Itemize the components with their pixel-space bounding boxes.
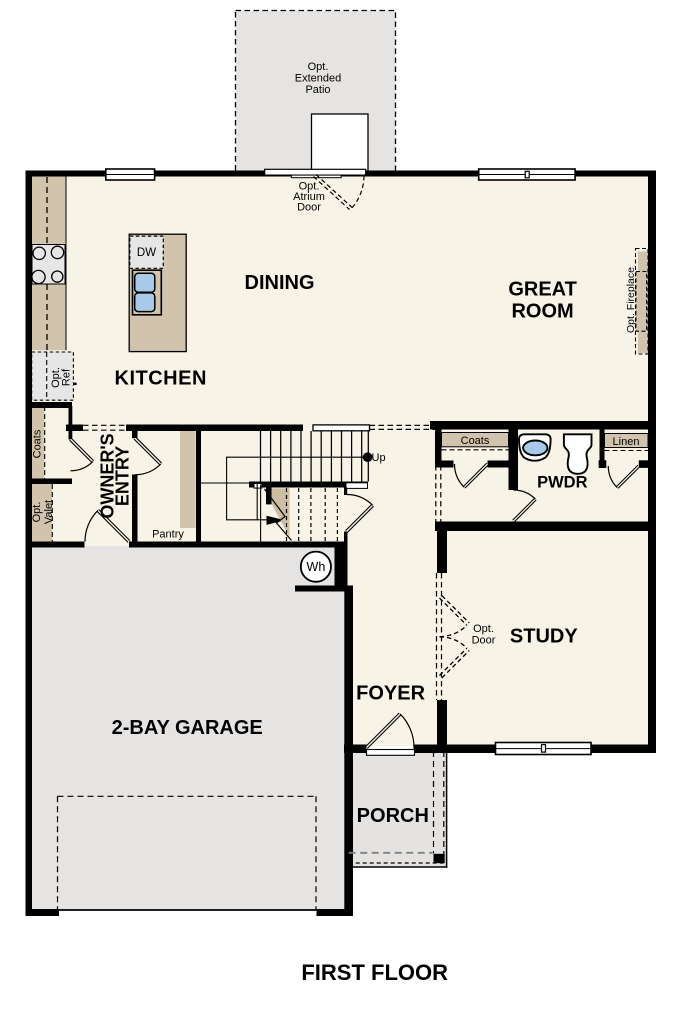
- svg-text:FIRST FLOOR: FIRST FLOOR: [301, 960, 448, 985]
- svg-text:Opt.: Opt.: [473, 623, 494, 635]
- svg-text:Patio: Patio: [305, 84, 330, 96]
- svg-text:Ref: Ref: [60, 368, 72, 386]
- svg-text:Pantry: Pantry: [152, 529, 184, 541]
- svg-text:DW: DW: [137, 247, 156, 259]
- svg-text:Extended: Extended: [295, 73, 341, 85]
- svg-text:Wh: Wh: [307, 560, 326, 574]
- svg-text:Coats: Coats: [461, 435, 490, 447]
- svg-text:Up: Up: [372, 452, 386, 464]
- svg-text:GREAT: GREAT: [508, 279, 577, 301]
- svg-text:Coats: Coats: [32, 429, 44, 458]
- svg-text:Opt.: Opt.: [31, 502, 43, 523]
- svg-text:Opt. Fireplace: Opt. Fireplace: [625, 267, 637, 333]
- svg-text:STUDY: STUDY: [510, 625, 578, 647]
- svg-text:PWDR: PWDR: [537, 474, 587, 492]
- svg-text:Valet: Valet: [43, 500, 55, 524]
- svg-text:Linen: Linen: [613, 436, 640, 448]
- svg-text:ENTRY: ENTRY: [112, 446, 132, 506]
- svg-text:Door: Door: [297, 201, 321, 213]
- svg-text:KITCHEN: KITCHEN: [115, 367, 207, 389]
- svg-text:PORCH: PORCH: [357, 805, 429, 827]
- svg-text:ROOM: ROOM: [511, 301, 573, 323]
- svg-text:2-BAY GARAGE: 2-BAY GARAGE: [112, 717, 263, 739]
- svg-text:DINING: DINING: [245, 272, 315, 294]
- svg-text:FOYER: FOYER: [356, 682, 425, 704]
- svg-text:Opt.: Opt.: [308, 61, 329, 73]
- svg-text:Door: Door: [472, 634, 496, 646]
